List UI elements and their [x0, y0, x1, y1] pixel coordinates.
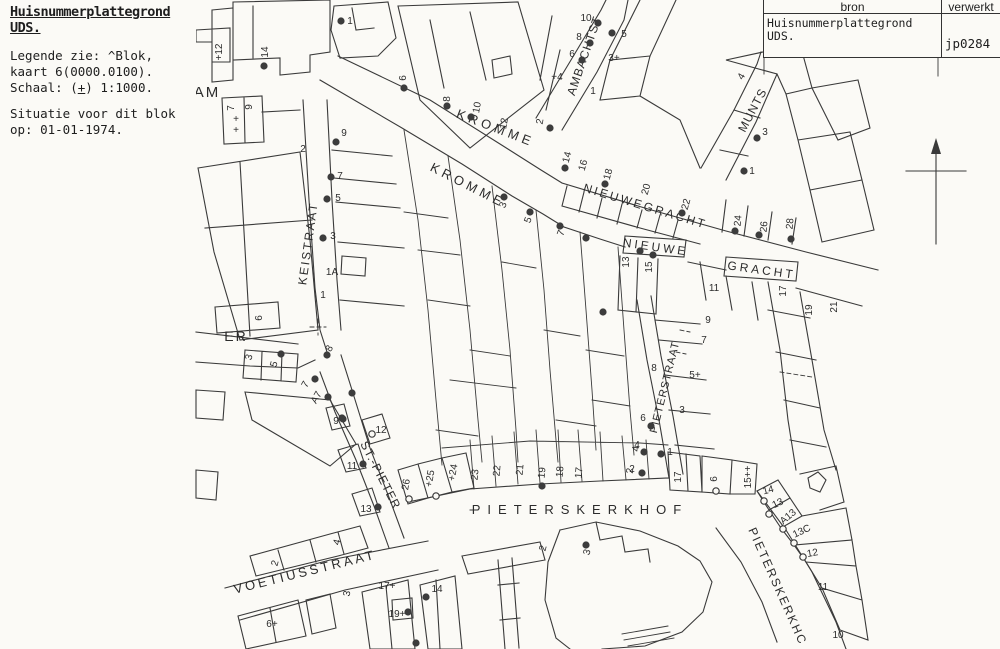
- house-number: 12: [375, 425, 387, 436]
- survey-dot: [546, 124, 553, 131]
- survey-dot: [324, 393, 331, 400]
- house-number: 14: [431, 584, 443, 595]
- survey-dot: [640, 448, 647, 455]
- door-circle: [800, 554, 806, 560]
- house-number: 3+: [608, 53, 620, 64]
- house-number: A7: [309, 389, 325, 405]
- house-number: 1: [320, 290, 326, 301]
- house-number: 9: [341, 128, 347, 139]
- house-number: 11: [347, 461, 358, 472]
- house-number: 13C: [791, 523, 812, 541]
- blocks-northwest: [196, 0, 356, 500]
- verwerkt-column-header: verwerkt: [941, 0, 1000, 14]
- legend-line: kaart 6(0000.0100).: [10, 64, 196, 80]
- street-name-label: ER: [224, 328, 247, 344]
- house-number: 4: [332, 538, 344, 547]
- house-number: 8: [651, 363, 657, 374]
- survey-dot: [649, 251, 656, 258]
- house-number: 12: [806, 547, 819, 560]
- house-number: 7: [337, 171, 343, 182]
- house-number: 15: [644, 261, 655, 273]
- bron-value: Huisnummerplattegrond UDS.: [767, 17, 939, 43]
- house-number: 7: [701, 335, 707, 346]
- house-number: 6+: [266, 619, 278, 630]
- house-number: 17: [673, 471, 684, 483]
- street-name-label: KEISTRAAT: [295, 201, 321, 286]
- house-number: 6: [569, 49, 575, 60]
- situation-line: op: 01-01-1974.: [10, 122, 196, 138]
- scale-line: Schaal: (+) 1:1000.: [10, 80, 196, 96]
- survey-dot: [500, 193, 507, 200]
- house-number: 6: [254, 315, 265, 321]
- street-name-label: AM: [194, 84, 221, 101]
- house-number: 19+: [389, 609, 406, 620]
- house-number: 13: [621, 256, 632, 268]
- house-number: 21: [829, 301, 840, 313]
- house-number: 10: [832, 630, 844, 641]
- survey-dot: [412, 639, 419, 646]
- survey-dot: [359, 460, 366, 467]
- survey-dot: [647, 422, 654, 429]
- house-number: 24: [733, 214, 745, 226]
- bron-column-header: bron: [764, 0, 941, 14]
- house-number: 19: [537, 466, 549, 478]
- survey-dot: [586, 39, 593, 46]
- house-number: +24: [447, 463, 461, 482]
- house-number: 3: [342, 589, 354, 597]
- house-number: 21: [515, 463, 527, 475]
- survey-dot: [422, 593, 429, 600]
- house-number: 7: [556, 228, 568, 237]
- survey-dot: [327, 173, 334, 180]
- house-number: 12: [498, 117, 511, 130]
- survey-dot: [582, 234, 589, 241]
- house-number: 11: [709, 283, 720, 294]
- table-border-artifact: [764, 57, 938, 76]
- house-number: 5+: [689, 370, 701, 381]
- table-divider: [941, 0, 942, 57]
- house-number: 18: [555, 465, 567, 477]
- house-number: 1: [667, 447, 673, 458]
- church-hatching: [622, 626, 674, 646]
- house-number: 7: [226, 105, 237, 111]
- street-name-label: KROMME: [428, 160, 508, 211]
- survey-dot: [337, 17, 344, 24]
- street-name-label: PIETERSKERKHC: [745, 525, 810, 647]
- door-circle: [791, 540, 797, 546]
- house-number: 8: [442, 96, 453, 102]
- house-number: 14: [762, 484, 776, 498]
- house-number: 10: [580, 13, 592, 24]
- house-number: 22: [492, 464, 504, 476]
- door-circle: [766, 511, 772, 517]
- survey-dot: [338, 414, 345, 421]
- door-circle: [433, 493, 439, 499]
- survey-dot: [753, 134, 760, 141]
- house-number: 3: [679, 405, 685, 416]
- pieterskerk-church: [462, 522, 712, 649]
- house-number: 17+: [379, 581, 396, 592]
- street-name-label: PIETERSKERKHOF: [472, 502, 688, 517]
- survey-dot: [755, 231, 762, 238]
- survey-dot: [582, 541, 589, 548]
- street-name-label: PIETERSTRAAT: [648, 340, 682, 434]
- legend-line: Legende zie: ^Blok,: [10, 48, 196, 64]
- survey-dot: [556, 222, 563, 229]
- survey-dot: [348, 389, 355, 396]
- door-circle: [406, 496, 412, 502]
- house-number: 15++: [743, 465, 754, 488]
- survey-dot: [332, 138, 339, 145]
- survey-dot: [526, 208, 533, 215]
- survey-dot: [400, 84, 407, 91]
- house-number: 1A: [326, 267, 339, 278]
- house-number: 3: [330, 231, 336, 242]
- house-number: +: [233, 114, 239, 125]
- survey-dot: [731, 227, 738, 234]
- survey-dot: [277, 350, 284, 357]
- house-number: 18: [602, 167, 616, 181]
- situation-line: Situatie voor dit blok: [10, 106, 196, 122]
- survey-dot: [467, 113, 474, 120]
- house-number: 3: [762, 127, 768, 138]
- survey-dot: [538, 482, 545, 489]
- street-labels-layer: AMERKROMMEKROMMENIEUWEGRACHTNIEUWEGRACHT…: [194, 14, 810, 647]
- house-number: 2: [538, 544, 550, 553]
- house-number: 4: [736, 71, 749, 82]
- survey-dot: [740, 167, 747, 174]
- house-number: 6: [398, 75, 409, 81]
- survey-dot: [601, 180, 608, 187]
- survey-dot: [678, 209, 685, 216]
- house-number: 9: [333, 416, 339, 427]
- house-number: 5: [523, 215, 535, 224]
- survey-dot: [323, 351, 330, 358]
- house-number: 13: [771, 496, 786, 511]
- source-table: bron verwerkt Huisnummerplattegrond UDS.…: [763, 0, 1000, 58]
- house-number: +25: [424, 469, 438, 488]
- street-name-label: KROMME: [454, 106, 536, 150]
- house-number: 3: [582, 548, 594, 557]
- house-number: +4: [551, 72, 563, 83]
- map-title: Huisnummerplattegrond UDS.: [10, 4, 196, 36]
- survey-dot: [638, 469, 645, 476]
- house-number: 6: [709, 476, 720, 482]
- house-number: 14: [260, 46, 271, 58]
- north-arrow-icon: [906, 138, 966, 244]
- house-number: 23: [470, 468, 482, 480]
- house-number: 2: [300, 144, 306, 155]
- blocks-top-centre: [331, 2, 560, 148]
- house-number: 26: [759, 220, 771, 232]
- house-number: 8: [576, 32, 582, 43]
- survey-dot: [323, 195, 330, 202]
- verwerkt-value: jp0284: [945, 36, 999, 51]
- house-number: +12: [214, 43, 225, 60]
- survey-dot: [561, 164, 568, 171]
- house-number: 28: [785, 217, 797, 229]
- house-number: 17: [574, 466, 586, 478]
- survey-dot: [608, 29, 615, 36]
- house-number: 5: [621, 29, 627, 40]
- house-number: 10: [471, 101, 484, 114]
- house-number: 20: [640, 182, 654, 196]
- blocks-middle-maze: [404, 130, 668, 489]
- house-number: 5: [335, 193, 341, 204]
- house-number: 2: [535, 117, 547, 125]
- door-circle: [780, 526, 786, 532]
- house-number: 16: [577, 158, 591, 172]
- house-number: 22: [680, 197, 694, 211]
- house-number: 11: [818, 582, 829, 593]
- street-name-label: VOETIUSSTRAAT: [232, 547, 378, 597]
- door-circle: [761, 498, 767, 504]
- source-table-header: bron verwerkt: [764, 0, 1000, 14]
- survey-dots-layer: [260, 17, 806, 646]
- survey-dot: [787, 235, 794, 242]
- survey-dot: [599, 308, 606, 315]
- survey-dot: [443, 102, 450, 109]
- survey-dot: [374, 503, 381, 510]
- survey-dot: [578, 56, 585, 63]
- house-number: 26: [400, 478, 413, 491]
- house-number: 7: [300, 379, 313, 390]
- survey-dot: [594, 19, 601, 26]
- door-circle: [713, 488, 719, 494]
- survey-dot: [319, 234, 326, 241]
- scanned-map-page: AMERKROMMEKROMMENIEUWEGRACHTNIEUWEGRACHT…: [0, 0, 1000, 649]
- house-number: 6: [640, 413, 646, 424]
- house-number: 2: [270, 559, 282, 568]
- survey-dot: [636, 247, 643, 254]
- house-number: 1: [347, 16, 353, 27]
- door-circle: [369, 431, 375, 437]
- house-number: 9: [244, 104, 255, 110]
- street-name-label: ST.-PIETER: [357, 439, 403, 512]
- house-number: 9: [705, 315, 711, 326]
- survey-dot: [260, 62, 267, 69]
- survey-dot: [404, 608, 411, 615]
- survey-dot: [657, 450, 664, 457]
- house-number: 14: [561, 150, 575, 164]
- survey-dot: [311, 375, 318, 382]
- house-number: +: [233, 125, 239, 136]
- house-number: 1: [749, 166, 755, 177]
- house-number: 1: [590, 86, 596, 97]
- house-number: 19: [804, 304, 815, 316]
- house-number: 13: [360, 504, 372, 515]
- house-number: 17: [778, 285, 789, 297]
- legend-info-block: Huisnummerplattegrond UDS. Legende zie: …: [10, 4, 196, 148]
- house-number: 3: [244, 353, 256, 362]
